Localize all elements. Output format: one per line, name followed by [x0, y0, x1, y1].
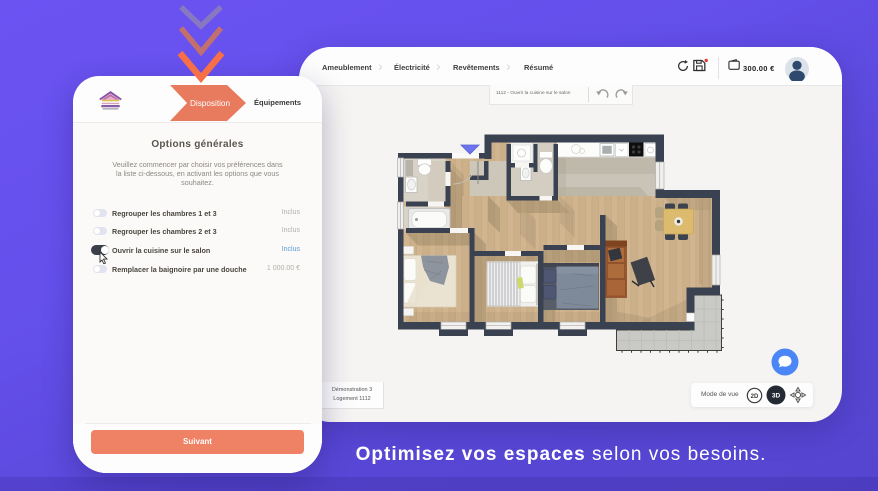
svg-text:3D: 3D	[772, 393, 781, 400]
svg-text:Disposition: Disposition	[190, 99, 230, 108]
svg-text:2D: 2D	[751, 394, 759, 400]
